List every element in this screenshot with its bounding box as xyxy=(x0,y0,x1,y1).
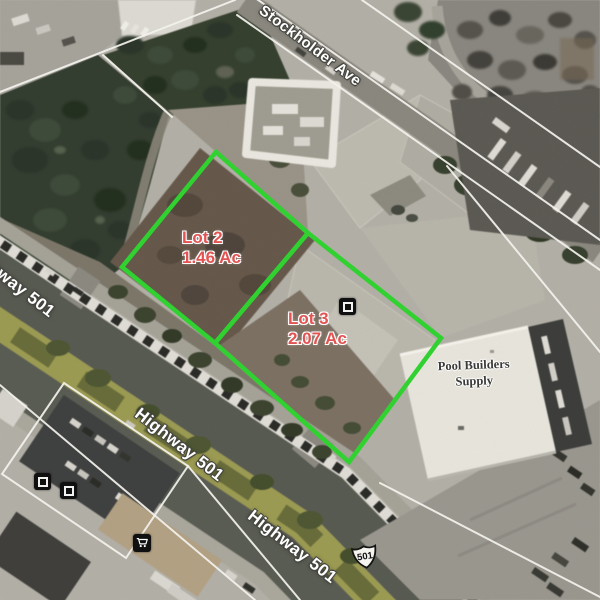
lot-3-area: 2.07 Ac xyxy=(288,329,347,349)
route-501-shield: 501 xyxy=(350,542,382,577)
square-icon xyxy=(38,477,48,487)
store-cart-marker[interactable] xyxy=(133,534,151,552)
lot3-square-marker[interactable] xyxy=(339,298,356,315)
square-icon xyxy=(64,486,74,496)
lot-3-label: Lot 3 2.07 Ac xyxy=(288,309,347,350)
satellite-imagery xyxy=(0,0,600,600)
cart-icon xyxy=(135,536,149,550)
southwest-square-marker-1[interactable] xyxy=(34,473,51,490)
satellite-map-view[interactable]: Stockholder Ave Highway 501 Highway 501 … xyxy=(0,0,600,600)
square-icon xyxy=(343,302,353,312)
business-name-line2: Supply xyxy=(438,372,510,390)
lot-2-name: Lot 2 xyxy=(182,228,241,248)
lot-2-area: 1.46 Ac xyxy=(182,248,241,268)
southwest-square-marker-2[interactable] xyxy=(60,482,77,499)
business-label: Pool Builders Supply xyxy=(438,357,511,391)
photo-grain xyxy=(0,0,600,600)
business-name-line1: Pool Builders xyxy=(438,357,510,375)
lot-2-label: Lot 2 1.46 Ac xyxy=(182,228,241,269)
